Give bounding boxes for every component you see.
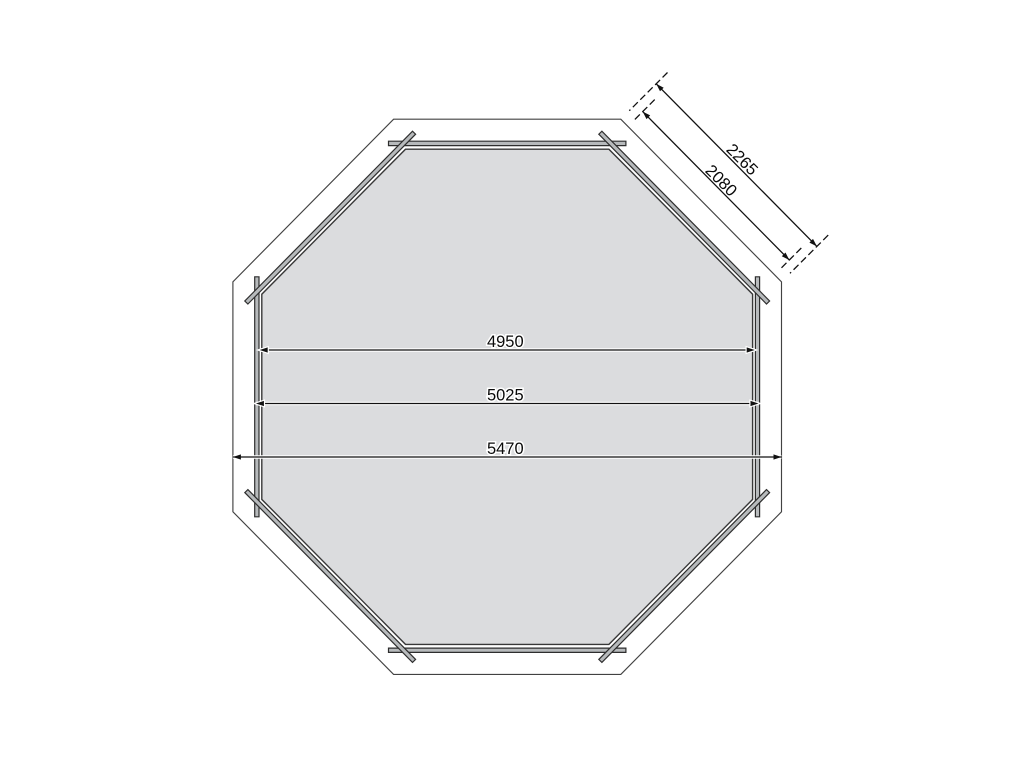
svg-text:2080: 2080: [702, 162, 741, 201]
svg-text:2265: 2265: [722, 141, 761, 180]
svg-text:5025: 5025: [487, 387, 524, 405]
svg-text:5470: 5470: [487, 440, 524, 458]
svg-text:4950: 4950: [487, 333, 524, 351]
